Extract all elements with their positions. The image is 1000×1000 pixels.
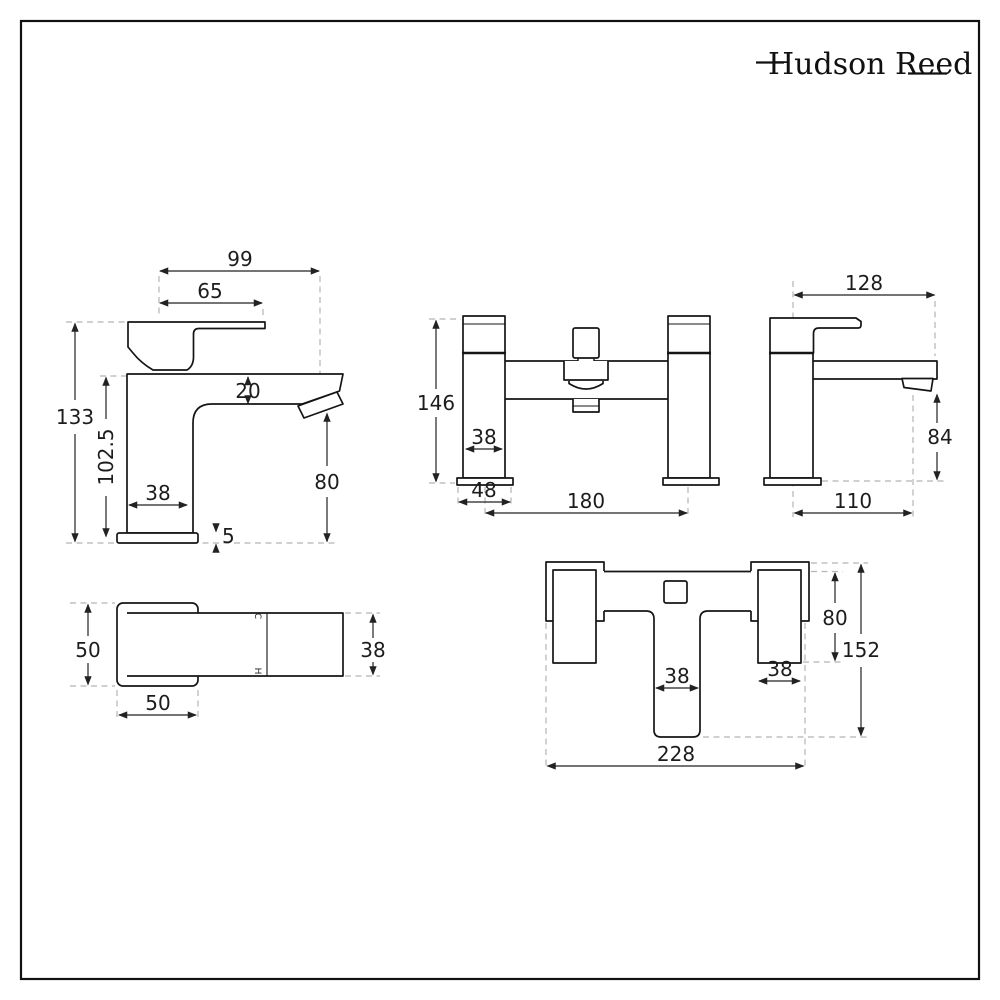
- basin-tap-base-plate: [117, 533, 198, 543]
- dim-pillar-width: 38: [471, 425, 496, 449]
- left-handle-plan: [553, 570, 596, 663]
- brand-name: Hudson Reed: [768, 47, 972, 82]
- dim-body-width: 38: [145, 481, 170, 505]
- brand-logo: Hudson Reed: [756, 47, 972, 82]
- hot-marking: H: [252, 668, 262, 675]
- dim-reach-handle: 65: [197, 279, 222, 303]
- dim-spout-width: 38: [664, 664, 689, 688]
- dim-body-width: 38: [360, 638, 385, 662]
- bath-side-handle: [770, 318, 861, 353]
- bath-side-spout: [813, 361, 937, 379]
- basin-mixer-side-view: 99 65 133 102.5 20 80 38 5: [56, 247, 343, 550]
- dim-width-total: 228: [657, 742, 695, 766]
- dim-reach: 128: [845, 271, 883, 295]
- right-handle-plan: [758, 570, 801, 663]
- dim-reach-overall: 99: [227, 247, 252, 271]
- technical-drawing-page: Hudson Reed 99 65 133 102.5 20 80: [0, 0, 1000, 1000]
- dim-base-width: 48: [471, 478, 496, 502]
- cold-marking: C: [252, 613, 262, 619]
- right-base-plate: [663, 478, 719, 485]
- dim-handle-width: 38: [767, 657, 792, 681]
- dim-base-thickness: 5: [222, 524, 235, 548]
- bath-side-column: [770, 353, 813, 478]
- dim-handle-width: 50: [75, 638, 100, 662]
- basin-mixer-top-view: C H 50 50 38: [70, 603, 386, 719]
- left-pillar: [463, 316, 505, 478]
- dim-spout-height: 80: [314, 470, 339, 494]
- dim-handle-length: 50: [145, 691, 170, 715]
- dim-height-total: 133: [56, 405, 94, 429]
- basin-tap-handle: [128, 322, 265, 370]
- basin-body-plan: [127, 613, 343, 676]
- centre-spout-block: [564, 361, 608, 380]
- dim-height-body: 102.5: [94, 428, 118, 485]
- dim-tap-centres: 180: [567, 489, 605, 513]
- bath-mixer-top-view: 80 152 38 38 228: [546, 562, 880, 770]
- dim-depth-total: 152: [842, 638, 880, 662]
- right-pillar: [668, 316, 710, 478]
- drawing-canvas: Hudson Reed 99 65 133 102.5 20 80: [0, 0, 1000, 1000]
- dim-spout-height: 84: [927, 425, 952, 449]
- diverter-knob-plan: [664, 581, 687, 603]
- dim-height: 146: [417, 391, 455, 415]
- bath-side-base-plate: [764, 478, 821, 485]
- diverter-knob: [573, 328, 599, 358]
- dim-handle-length: 80: [822, 606, 847, 630]
- dim-base-depth: 110: [834, 489, 872, 513]
- dim-spout-thickness: 20: [235, 379, 260, 403]
- bath-side-aerator: [902, 379, 933, 392]
- bath-mixer-side-view: 128 84 110: [764, 271, 953, 517]
- bath-mixer-front-view: 146 38 48 180: [417, 316, 719, 517]
